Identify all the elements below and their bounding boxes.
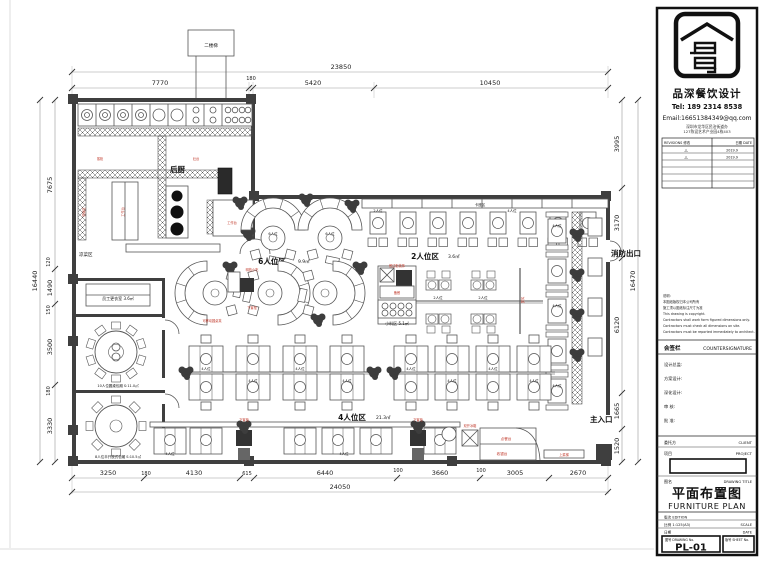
label-seat2: 2人位 (373, 208, 383, 213)
zone-4-seat-blocks: 4人位 4人位 4人位 4人位 4人位 4人位 4人位 4人位 4人位区 21.… (179, 335, 556, 422)
dim-bottom-seg8: 100 (476, 468, 486, 474)
dimensions-top: 23850 7770 180 5420 10450 (69, 63, 611, 98)
project-label-en: PROJECT (736, 451, 753, 456)
note-line: Contractors must be reported immediately… (663, 330, 755, 334)
dim-top-seg4: 10450 (480, 79, 501, 87)
dim-right-seg3: 6120 (613, 317, 621, 334)
title-block: 品深餐饮设计 Tel: 189 2314 8538 Email:16651384… (657, 8, 757, 555)
drawing-number: PL-01 (675, 543, 707, 554)
label-seat4: 4人位 (552, 383, 562, 388)
label-order-counter: 点餐台 (501, 436, 512, 441)
zone-label-stairs: 二楼梯 (204, 42, 218, 49)
table-2p (428, 212, 448, 247)
drawing-canvas: 23850 7770 180 5420 10450 16440 7675 120… (0, 0, 760, 564)
label-seat4: 4人位 (507, 208, 517, 213)
label-steamer: 蒸柜 (97, 156, 104, 161)
zone-area-6seat: 9.9㎡ (298, 258, 310, 265)
dim-bottom-seg2: 180 (141, 471, 151, 477)
label-worktable-1: 工作台 (120, 207, 125, 217)
note-line: 本图纸版权归本公司所有 (663, 299, 700, 304)
table-4p (236, 346, 270, 372)
round-table-8 (86, 396, 146, 456)
dim-right-seg2: 3170 (613, 215, 621, 232)
revisions-header-left: REVISIONS 修改 (664, 140, 691, 145)
label-fridge: 双开冰箱 (464, 423, 478, 428)
label-prep: 备餐 (394, 290, 401, 295)
zone-area-4seat: 21.3㎡ (376, 414, 391, 421)
zone-label-fire-exit: 消防出口 (611, 248, 641, 258)
room-label-round10: 10人位圆桌包厢 S:11.0㎡ (97, 383, 139, 388)
countersign-zh: 会签栏 (664, 344, 681, 352)
service-cabinet (240, 278, 254, 292)
label-snack: 明档小吃 (246, 267, 260, 272)
table-4p (190, 428, 222, 454)
label-seat4: 4人位 (342, 378, 352, 383)
dim-bottom-seg6: 100 (393, 468, 403, 474)
zone-label-4seat: 4人位区 (338, 412, 366, 422)
dim-left-seg5: 3500 (46, 339, 54, 356)
stair-box (188, 30, 234, 56)
table-4p (330, 346, 364, 372)
dim-left-seg4: 150 (46, 305, 52, 315)
dim-bottom-seg9: 3005 (507, 469, 524, 477)
company-tel: Tel: 189 2314 8538 (672, 103, 743, 111)
booth-4p (546, 292, 568, 330)
note-line: Contractors must check all dimensions on… (663, 324, 740, 328)
company-name: 品深餐饮设计 (673, 87, 742, 100)
dim-bottom-seg1: 3250 (100, 469, 117, 477)
zone-6-seat: 6人位 6人位 6人位区 9.9㎡ 明档小吃 下置柜 可移动圆桌凳 (175, 194, 368, 328)
dim-left-overall: 16440 (31, 271, 39, 292)
zone-label-cold-dish: 凉菜区 (79, 251, 93, 258)
sheet-no-label: 版号 SHEET No. (725, 537, 749, 542)
drawing-title-label-zh: 图名 (664, 478, 672, 484)
date-label-zh: 日期 (664, 530, 672, 535)
table-pair-2p (426, 314, 451, 333)
label-seat4: 4人位 (552, 303, 562, 308)
dim-right-seg4: 1665 (613, 403, 621, 420)
room-label-changing: 员工更衣室 3.6㎡ (102, 295, 134, 301)
table-pair-2p (426, 271, 451, 290)
dim-left-seg6: 180 (46, 386, 52, 396)
table-4p (360, 428, 392, 454)
kitchen-tile-wall (78, 128, 252, 136)
table-2p (518, 212, 538, 247)
dim-left-seg2: 120 (46, 257, 52, 267)
sign-line: 设计总监: (664, 361, 682, 368)
table-2p (488, 212, 508, 247)
dim-top-seg3: 5420 (305, 79, 322, 87)
table-4p (517, 374, 551, 400)
table-pair-2p (471, 271, 496, 290)
note-line: 施工须以图纸标注尺寸为准 (663, 305, 703, 310)
bottom-strip: 下置柜 下置柜 4人位 4人位 双开冰箱 点餐台 收银台 上菜梯 (150, 417, 584, 460)
scale-value: 比例 1:125(A3) (664, 522, 691, 527)
edition-row: 版次 EDITION (664, 515, 688, 520)
label-seat4: 4人位 (447, 378, 457, 383)
drawing-title-en: FURNITURE PLAN (668, 501, 746, 511)
dim-left-seg1: 7675 (46, 177, 54, 194)
label-dish-lift: 上菜梯 (559, 452, 569, 457)
label-seat4: 4人位 (529, 378, 539, 383)
label-seat6: 6人位 (268, 231, 278, 236)
table-4p (154, 428, 186, 454)
label-under-cabinet: 下置柜 (247, 305, 257, 310)
company-address-2: 127陈设艺术产业园4栋403 (683, 129, 731, 134)
company-email: Email:16651384349@qq.com (663, 115, 752, 122)
client-label-zh: 委托方 (664, 439, 676, 445)
round-table-10 (86, 322, 146, 382)
dimensions-right: 3995 3170 6120 1665 1520 16470 (613, 97, 641, 465)
dimensions-left: 16440 7675 120 1490 150 3500 180 3330 (31, 97, 58, 465)
middle-cluster: 2人位 2人位 屏风 餐边柜装饰 备餐 小料区 5.1㎡ (378, 263, 543, 334)
project-label-zh: 项目 (664, 450, 672, 456)
label-seat4: 4人位 (201, 366, 211, 371)
dim-left-seg3: 1490 (46, 280, 54, 297)
label-dishwash: 洗碗区 (81, 206, 86, 216)
zone-label-booth-strip: 卡座区 (475, 202, 486, 207)
table-4p (322, 428, 354, 454)
table-4p (517, 346, 551, 372)
table-4p (189, 374, 223, 400)
dim-bottom-seg4: 615 (242, 471, 252, 477)
zone-label-main-entrance: 主入口 (590, 414, 613, 424)
label-under-cabinet: 下置柜 (239, 417, 249, 422)
table-pair-2p (471, 314, 496, 333)
label-seat4: 4人位 (339, 451, 349, 456)
label-stove: 灶台 (193, 156, 199, 161)
table-4p (330, 374, 364, 400)
table-4p (394, 374, 428, 400)
table-4p (435, 374, 469, 400)
label-screen: 屏风 (521, 296, 525, 303)
date-label-en: DATE (743, 531, 753, 535)
dim-top-seg1: 7770 (152, 79, 169, 87)
booth-4p (546, 252, 568, 290)
dim-bottom-seg5: 6440 (317, 469, 334, 477)
note-line: Contractors shall work form figured dime… (663, 318, 750, 322)
entrance-pier (596, 444, 612, 460)
zone-area-2seat: 3.6㎡ (448, 253, 460, 260)
label-seat2: 2人位 (433, 295, 443, 300)
sign-line: 深化设计: (664, 389, 682, 396)
table-4p (236, 374, 270, 400)
dim-top-seg2: 180 (246, 76, 256, 82)
label-movable-stool: 可移动圆桌凳 (202, 318, 222, 323)
table-4p (435, 346, 469, 372)
drawing-title-label-en: DRAWING TITLE (724, 480, 753, 484)
zone-label-spice: 小料区 5.1㎡ (385, 320, 409, 326)
sign-line: 批 准: (664, 417, 675, 424)
drawing-no-label: 图号 DRAWING No. (665, 537, 694, 542)
dim-bottom-seg3: 4130 (186, 469, 203, 477)
table-4p (476, 374, 510, 400)
dim-right-seg1: 3995 (613, 136, 621, 153)
table-4p (284, 428, 316, 454)
cad-floorplan-page: 23850 7770 180 5420 10450 16440 7675 120… (0, 0, 760, 564)
label-sideboard: 餐边柜装饰 (389, 263, 405, 268)
zone-label-kitchen: 后厨 (170, 164, 185, 174)
revisions-header-right: 日期 DATE (735, 140, 752, 145)
dim-left-seg7: 3330 (46, 418, 54, 435)
dimensions-bottom: 3250 180 4130 615 6440 100 3660 100 3005… (69, 464, 611, 495)
label-under-cabinet: 下置柜 (413, 417, 423, 422)
label-seat4: 4人位 (248, 378, 258, 383)
table-4p (283, 374, 317, 400)
countersign-en: COUNTERSIGNATURE (703, 346, 752, 352)
drawing-title-zh: 平面布置图 (672, 486, 742, 502)
label-worktable-2: 工作台 (227, 220, 237, 225)
note-line: This drawing is copyright. (662, 312, 705, 316)
dim-bottom-seg10: 2670 (570, 469, 587, 477)
revision-date: 2019.9 (726, 149, 738, 153)
dim-bottom-overall: 24050 (330, 483, 351, 491)
client-label-en: CLIENT (739, 440, 753, 445)
label-seat4: 4人位 (488, 366, 498, 371)
label-cashier: 收银台 (497, 451, 508, 456)
kitchen-area: 后厨 凉菜区 二楼梯 蒸柜 灶台 工作台 洗碗区 工作台 (78, 42, 256, 258)
label-seat4: 4人位 (165, 451, 175, 456)
label-seat4: 4人位 (406, 366, 416, 371)
dim-right-seg5: 1520 (613, 438, 621, 455)
room-label-round8: 8人位半开放式包厢 S:10.5㎡ (95, 454, 142, 459)
label-seat4: 4人位 (295, 366, 305, 371)
table-2p (398, 212, 418, 247)
note-line: 说明: (663, 293, 671, 298)
upright-fridge (218, 168, 232, 194)
sign-line: 审 核: (664, 403, 675, 410)
label-seat6: 6人位 (325, 231, 335, 236)
zone-label-2seat: 2人位区 (411, 251, 439, 261)
label-seat4: 4人位 (552, 223, 562, 228)
dim-top-overall: 23850 (331, 63, 352, 71)
sign-line: 方案设计: (664, 375, 682, 382)
dim-right-overall: 16470 (629, 271, 637, 292)
dim-bottom-seg7: 3660 (432, 469, 449, 477)
table-2p (458, 212, 478, 247)
scale-label-en: SCALE (740, 523, 752, 527)
label-seat2: 2人位 (478, 295, 488, 300)
table-2p (368, 212, 388, 247)
revision-date: 2019.9 (726, 156, 738, 160)
